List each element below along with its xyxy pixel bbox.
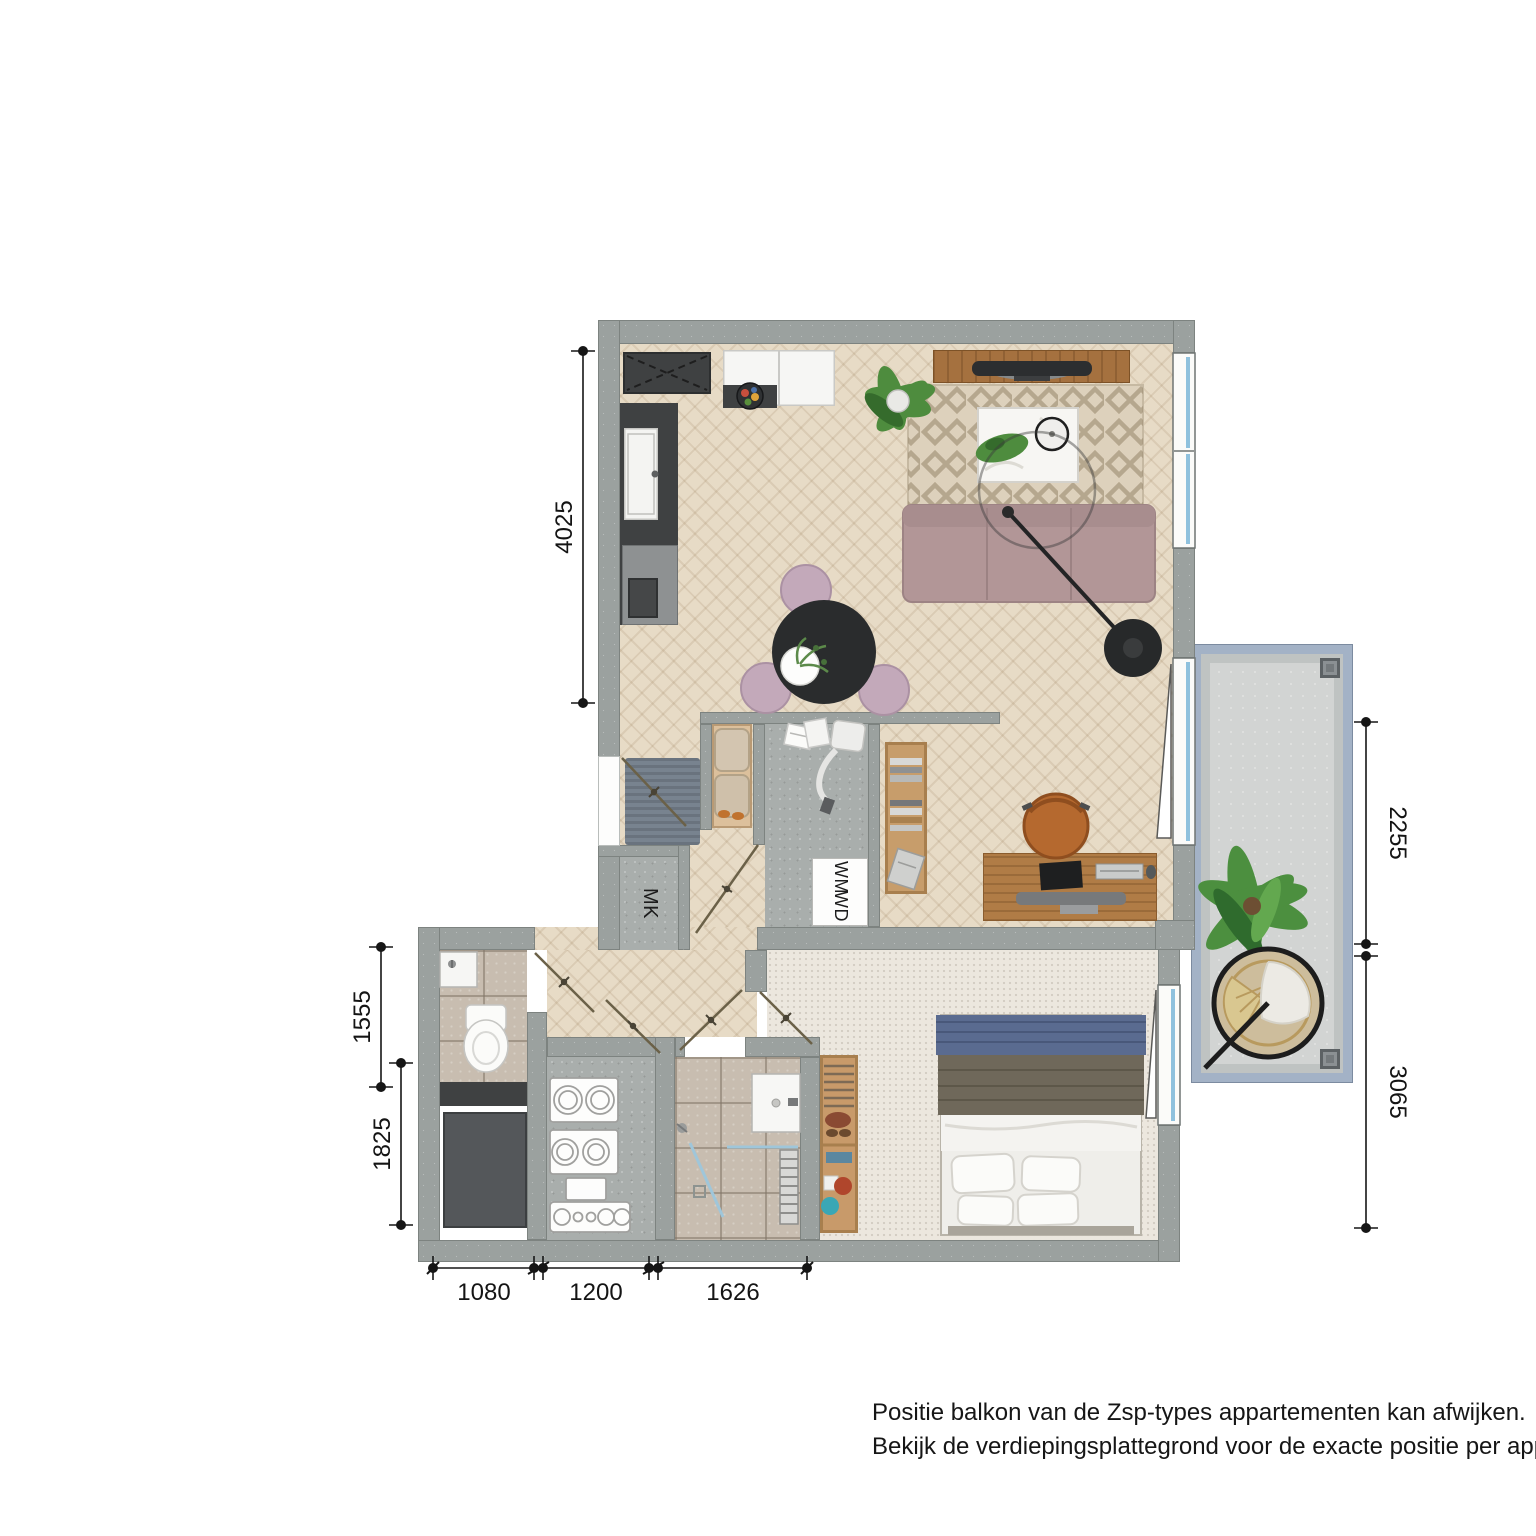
shoes-icon bbox=[732, 812, 744, 820]
dim-label: 4025 bbox=[551, 500, 578, 553]
bed bbox=[936, 1015, 1146, 1235]
vacuum-icon bbox=[830, 720, 866, 752]
sofa bbox=[903, 505, 1155, 602]
dim-label: 3065 bbox=[1384, 1065, 1411, 1118]
mouse-icon bbox=[1146, 865, 1156, 879]
dim-2255: 2255 bbox=[1354, 718, 1411, 948]
shoes-icon bbox=[718, 810, 730, 818]
dim-4025: 4025 bbox=[551, 347, 595, 707]
living-window bbox=[1173, 353, 1195, 548]
dim-label: 1626 bbox=[706, 1279, 759, 1306]
dim-label: 2255 bbox=[1384, 806, 1411, 859]
tv-icon bbox=[972, 361, 1092, 381]
toilet-icon bbox=[464, 1005, 508, 1072]
coffee-table bbox=[972, 408, 1078, 482]
plan-overlay: 4025 1555 1825 bbox=[0, 0, 1536, 1536]
vestibule-items bbox=[784, 718, 866, 814]
dim-3065: 3065 bbox=[1354, 952, 1411, 1232]
dim-1555: 1555 bbox=[349, 943, 393, 1091]
footnote: Positie balkon van de Zsp-types appartem… bbox=[872, 1396, 1536, 1464]
radiator-icon bbox=[780, 1150, 798, 1224]
window-sash-icon bbox=[1146, 990, 1156, 1118]
desk-chair-icon bbox=[1024, 794, 1088, 858]
dim-label: 1555 bbox=[349, 990, 376, 1043]
toilet-fixtures bbox=[440, 952, 508, 1072]
footnote-line-1: Positie balkon van de Zsp-types appartem… bbox=[872, 1396, 1536, 1430]
dining-set bbox=[741, 565, 909, 715]
bed-duvet-icon bbox=[941, 1115, 1141, 1151]
laptop-icon bbox=[1039, 861, 1083, 891]
fruit-bowl-icon bbox=[737, 383, 763, 409]
balcony-plant-icon bbox=[1193, 843, 1313, 961]
dim-label: 1825 bbox=[369, 1117, 396, 1170]
bookshelf-books bbox=[887, 758, 924, 889]
floor-plan: WM WD MK bbox=[0, 0, 1536, 1536]
bench-cushions bbox=[715, 729, 749, 820]
bathroom-fixtures bbox=[677, 1074, 800, 1224]
door-handles bbox=[559, 787, 791, 1031]
corner-sink-icon bbox=[440, 952, 477, 987]
dim-label: 1080 bbox=[457, 1279, 510, 1306]
wardrobe-contents bbox=[821, 1066, 856, 1215]
monitor-bar-icon bbox=[1016, 892, 1126, 905]
door-leaves bbox=[535, 758, 812, 1053]
dim-label: 1200 bbox=[569, 1279, 622, 1306]
kitchen-sink-icon bbox=[628, 434, 659, 514]
tech-appliances bbox=[550, 1078, 630, 1232]
desk-items bbox=[1016, 794, 1156, 914]
egg-chair-icon bbox=[1205, 949, 1322, 1068]
shower-drain-icon bbox=[694, 1186, 705, 1197]
bedroom-window bbox=[1146, 985, 1180, 1125]
balcony-door bbox=[1157, 658, 1195, 845]
footnote-line-2: Bekijk de verdiepingsplattegrond voor de… bbox=[872, 1430, 1536, 1464]
door-leaf-icon bbox=[1157, 664, 1171, 838]
dimensions: 4025 1555 1825 bbox=[349, 347, 1411, 1306]
paper-icon bbox=[804, 718, 830, 747]
kitchen-hood-icon bbox=[627, 356, 707, 390]
dim-1825: 1825 bbox=[369, 1059, 413, 1229]
dim-bottom-chain: 1080 1200 1626 bbox=[427, 1256, 813, 1306]
